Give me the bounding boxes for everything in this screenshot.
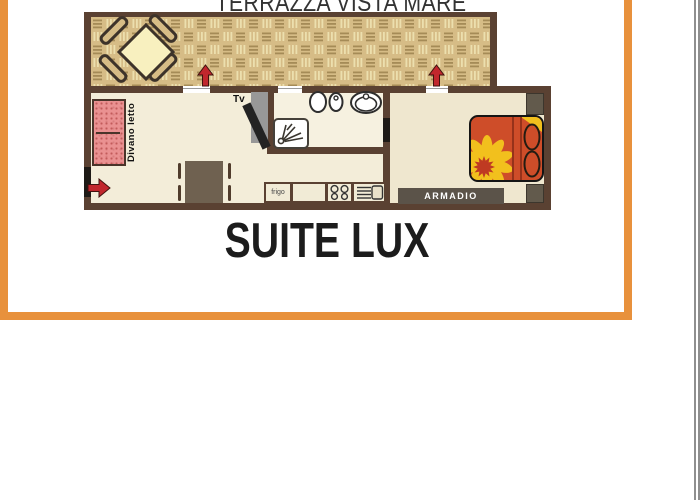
kitchen-sink-icon — [354, 184, 384, 201]
terrace-arrow-bedroom-icon — [428, 64, 445, 87]
suite-caption: SUITE LUX — [187, 213, 467, 269]
kitchen-counter — [291, 182, 327, 203]
bed-sheet-line — [520, 117, 522, 180]
chair-icon — [178, 163, 181, 179]
bed-decor — [471, 117, 542, 180]
wall-terrace-right — [490, 12, 497, 92]
terrace-door-bedroom — [426, 86, 448, 93]
shower-spray-icon — [275, 120, 307, 147]
right-edge-line — [694, 0, 696, 500]
wardrobe: ARMADIO — [398, 188, 504, 204]
wall-bottom — [84, 203, 551, 210]
pillows-icon — [525, 125, 540, 177]
entrance-arrow-icon — [87, 178, 111, 198]
bath-fixtures — [306, 90, 386, 116]
sofa-bed-label: Divano letto — [126, 98, 139, 166]
terrace-chair-icon — [99, 54, 128, 83]
wall-right — [544, 86, 551, 210]
sofa-cushion-divider — [96, 132, 120, 134]
double-bed — [469, 115, 544, 182]
nightstand — [526, 93, 544, 115]
chair-icon — [228, 163, 231, 179]
floor-plan-page: TERRAZZA VISTA MARE — [0, 0, 700, 500]
terrace-chair-icon — [100, 16, 129, 45]
chair-icon — [228, 185, 231, 201]
sunflower-icon — [471, 135, 514, 180]
toilet-icon — [310, 92, 326, 112]
tv-label: Tv — [233, 94, 245, 105]
dining-table — [185, 161, 223, 203]
fridge: frigo — [264, 182, 292, 203]
bed-sheet-line — [512, 117, 514, 180]
terrace-arrow-living-icon — [197, 64, 214, 87]
stove-burners-icon — [328, 184, 351, 201]
sofa-bed — [92, 99, 126, 166]
chair-icon — [178, 185, 181, 201]
nightstand — [526, 184, 544, 203]
shower — [273, 118, 309, 149]
stove — [326, 182, 353, 203]
fridge-label: frigo — [266, 184, 290, 201]
terrace-table-set — [95, 14, 200, 89]
bedroom-door — [383, 118, 390, 142]
bathroom-window — [278, 86, 302, 93]
kitchen-sink — [352, 182, 386, 203]
